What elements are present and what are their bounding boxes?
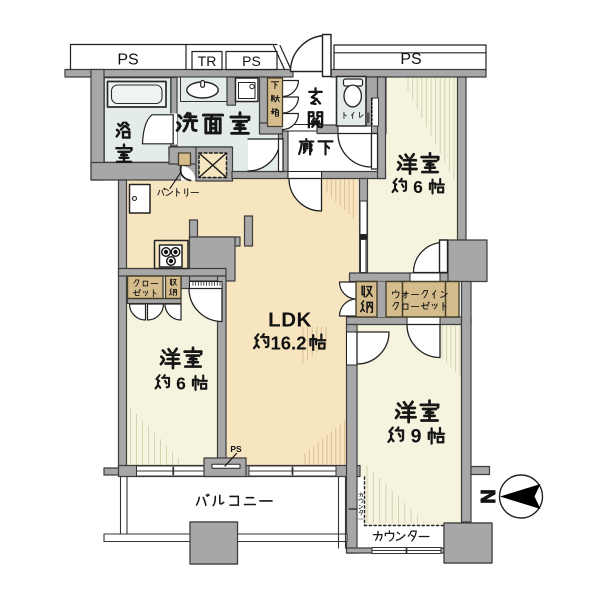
svg-text:6: 6 xyxy=(413,177,423,197)
svg-text:PS: PS xyxy=(117,52,138,69)
svg-text:PS: PS xyxy=(242,53,261,69)
svg-text:TR: TR xyxy=(198,53,217,69)
svg-text:PS: PS xyxy=(230,444,242,454)
svg-text:LDK: LDK xyxy=(268,309,312,332)
svg-text:6: 6 xyxy=(176,374,186,394)
svg-text:N: N xyxy=(478,489,500,503)
svg-text:9: 9 xyxy=(411,426,422,448)
svg-text:16.2: 16.2 xyxy=(270,333,306,354)
svg-text:PS: PS xyxy=(400,51,421,68)
